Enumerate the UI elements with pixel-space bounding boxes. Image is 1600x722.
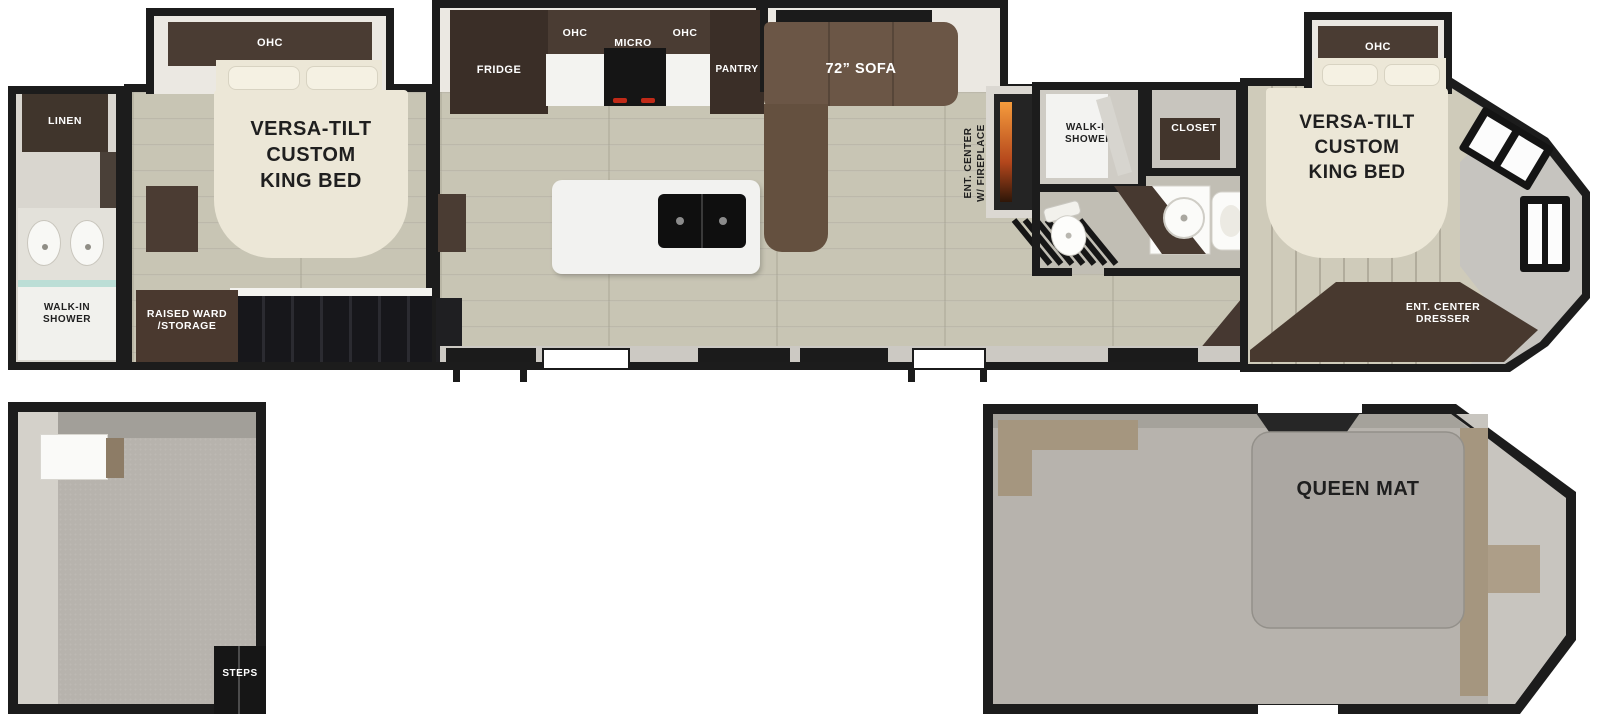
front-bed-line2: CUSTOM	[1266, 135, 1448, 160]
steps-box	[214, 646, 266, 714]
entry-door	[912, 348, 986, 370]
queen-mat-label: QUEEN MAT	[1258, 478, 1458, 501]
bath-wall	[1032, 268, 1072, 276]
front-loft	[983, 404, 1576, 714]
loft-rail-wood	[998, 420, 1138, 450]
shower-glass-door	[1096, 96, 1132, 176]
pillow	[1322, 64, 1378, 86]
window	[800, 348, 888, 362]
loft-window-gap	[1258, 404, 1362, 413]
loft-window-gap	[1258, 705, 1338, 714]
front-cap-window-lower	[1520, 196, 1570, 272]
queen-mat	[1252, 432, 1464, 628]
loft-rail-wood	[998, 450, 1032, 496]
vanity-sink-drain	[1181, 215, 1188, 222]
front-ohc-label: OHC	[1318, 41, 1438, 54]
steps-seam	[238, 646, 240, 714]
dresser-label: ENT. CENTER DRESSER	[1368, 301, 1518, 325]
front-bed-line1: VERSA-TILT	[1266, 110, 1448, 135]
entry-door	[542, 348, 630, 370]
window	[446, 348, 536, 362]
front-bed-line3: KING BED	[1266, 160, 1448, 185]
stabilizer-foot	[908, 370, 915, 382]
stabilizer-foot	[980, 370, 987, 382]
stabilizer-foot	[520, 370, 527, 382]
bath-fixture-bowl	[1220, 205, 1242, 237]
bath-wall	[1104, 268, 1246, 276]
bath-wall	[1032, 190, 1040, 276]
window	[698, 348, 790, 362]
loft-wood-shelf	[1488, 545, 1540, 593]
front-bed-label: VERSA-TILT CUSTOM KING BED	[1266, 110, 1448, 185]
loft-cabinet	[40, 434, 108, 480]
pillow	[1384, 64, 1440, 86]
loft-cabinet-end	[106, 438, 124, 478]
steps-label: STEPS	[210, 668, 270, 680]
dresser-line2: DRESSER	[1368, 313, 1518, 325]
dresser-line1: ENT. CENTER	[1368, 301, 1518, 313]
stabilizer-foot	[453, 370, 460, 382]
rv-floorplan-canvas: LINEN WALK-IN SHOWER OHC VERSA-TILT CUST…	[0, 0, 1600, 722]
window	[1108, 348, 1198, 362]
